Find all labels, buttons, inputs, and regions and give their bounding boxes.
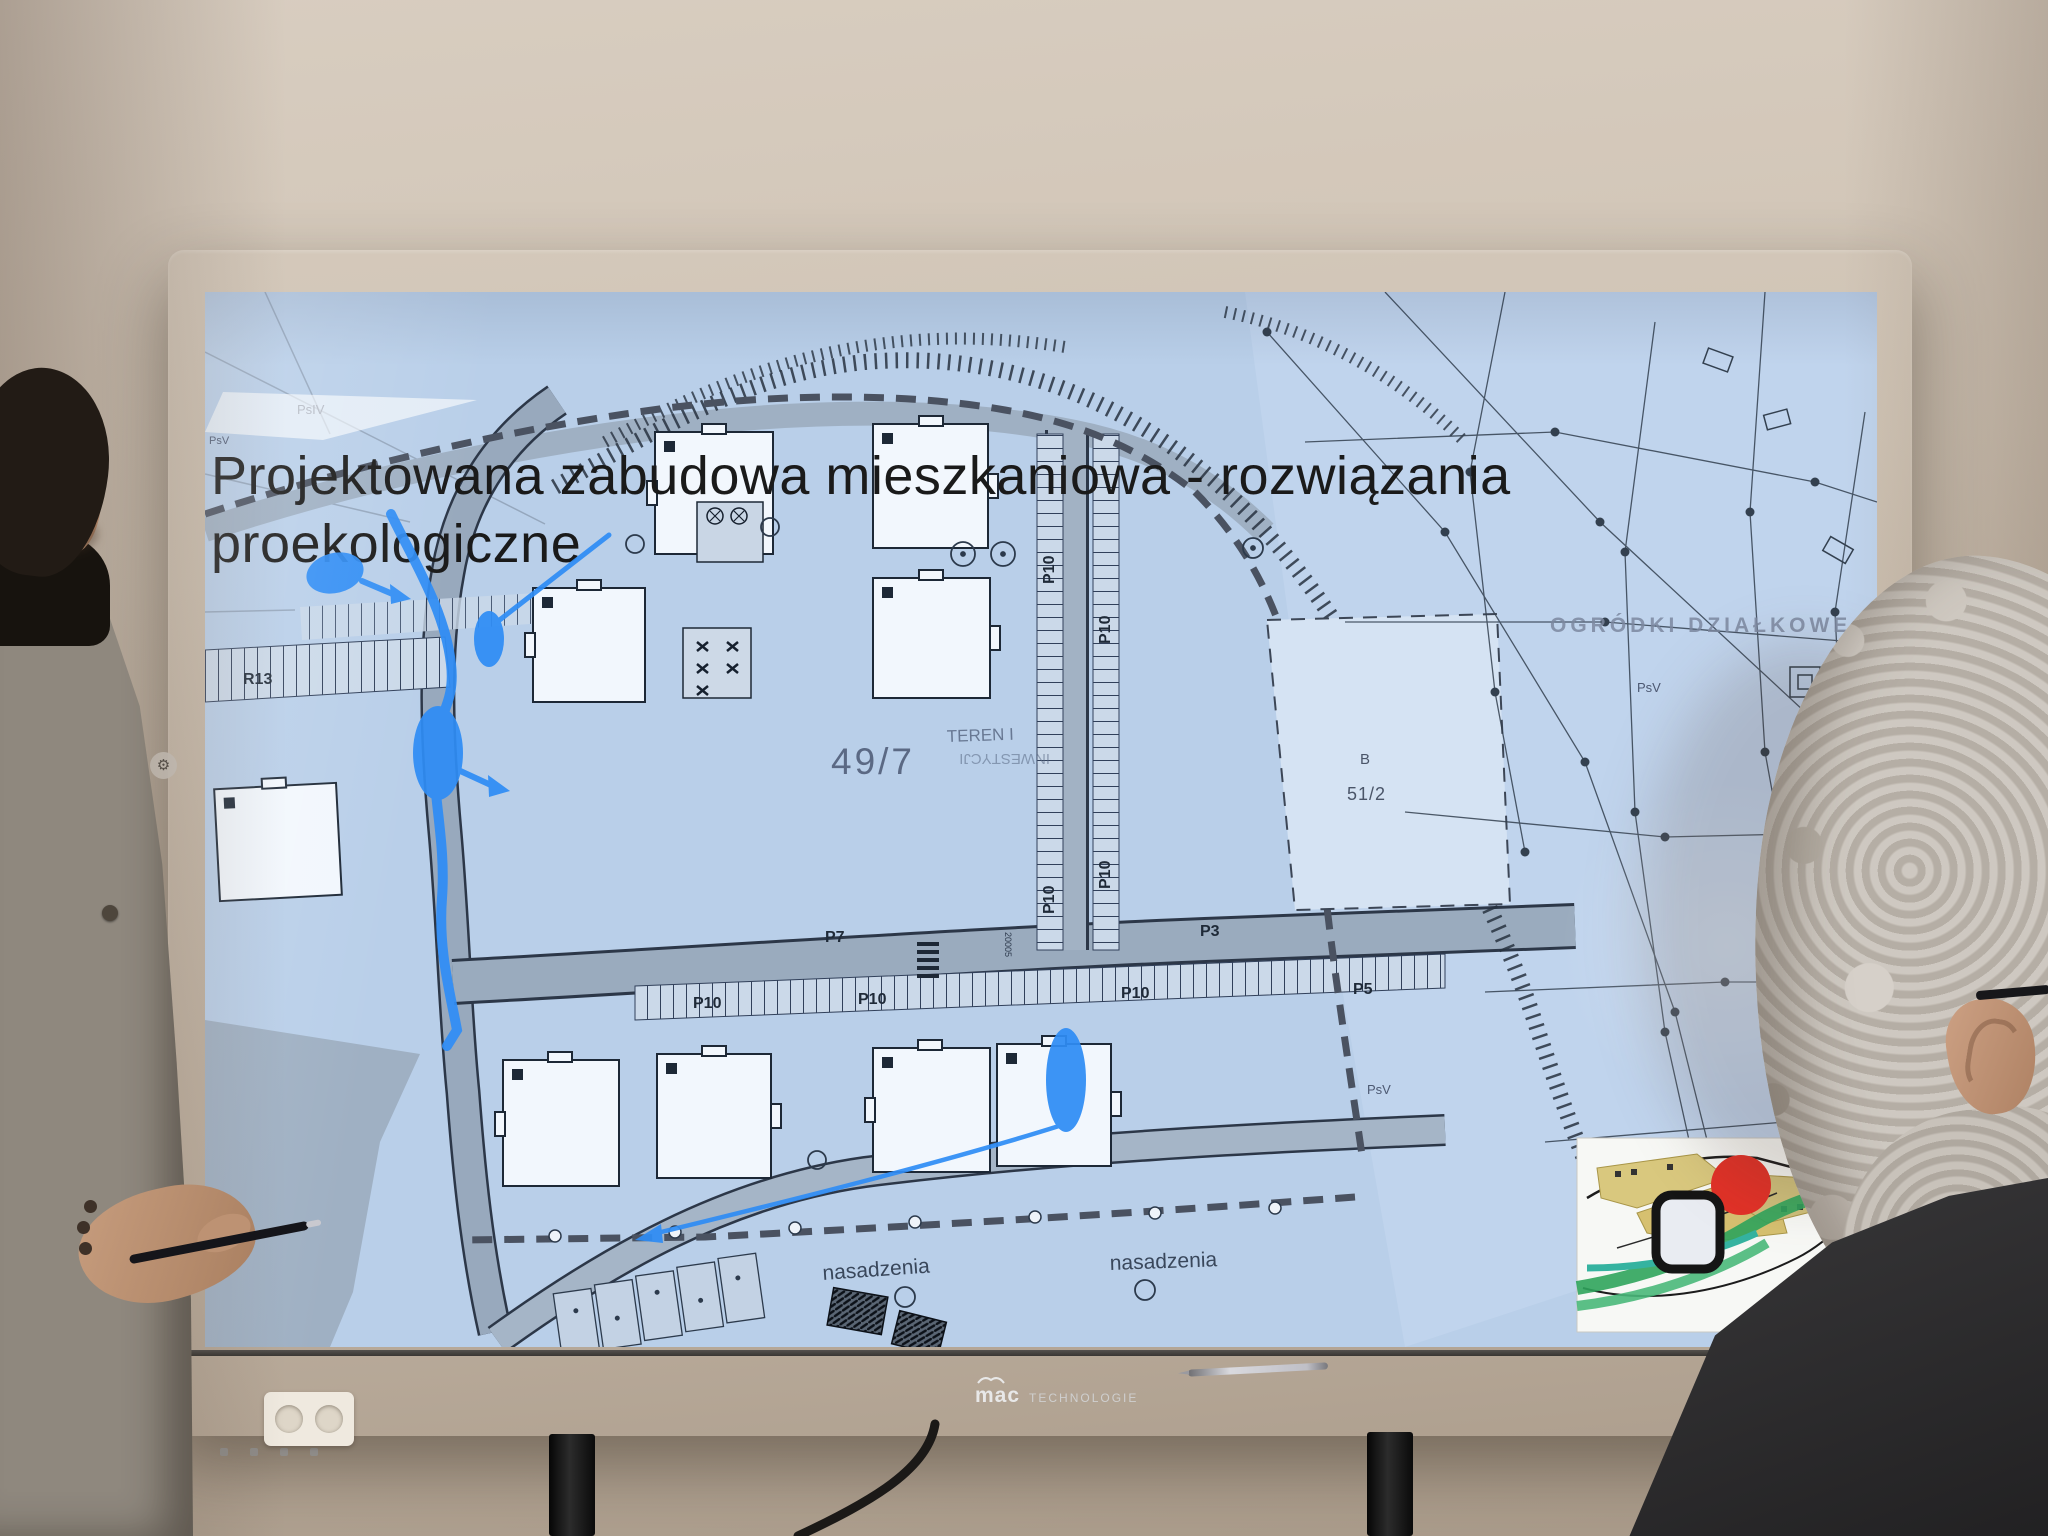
display-screen[interactable]: PsIV PsV OGRÓDKI DZIAŁKOWE PsV PsV B 51/… — [205, 292, 1877, 1347]
utility-square — [697, 502, 763, 562]
label-p3: P3 — [1200, 923, 1220, 940]
bracelet-bead — [84, 1200, 97, 1213]
label-p10-row3: P10 — [1121, 985, 1150, 1002]
glasses-temple — [1976, 985, 2048, 1000]
presenter-left-hair — [0, 360, 120, 583]
marker-ellipse-curve — [413, 706, 463, 800]
label-parcel-letter: B — [1360, 751, 1370, 768]
wall-outlet — [264, 1392, 354, 1446]
label-p10-v2: P10 — [1097, 615, 1114, 644]
tv-stand-leg-left — [549, 1434, 595, 1536]
label-teren-rotated: INWESTYCJI — [959, 750, 1050, 767]
label-allotments: OGRÓDKI DZIAŁKOWE — [1550, 613, 1851, 637]
bracelet-bead — [79, 1242, 92, 1255]
presenter-left-jacket — [0, 548, 193, 1536]
label-dimension: 20005 — [1003, 932, 1013, 957]
label-psv-east: PsV — [1637, 680, 1661, 695]
parcel-b — [1267, 614, 1510, 910]
label-teren: TEREN I — [946, 725, 1014, 746]
label-parcel-number: 51/2 — [1347, 784, 1386, 804]
marker-ellipse-south — [1046, 1028, 1086, 1132]
viewer-right-ear — [1939, 992, 2044, 1120]
tv-brand-suffix: TECHNOLOGIE — [1029, 1391, 1138, 1405]
label-plot-number: 49/7 — [831, 741, 915, 782]
presenter-left-turtleneck — [0, 534, 110, 646]
speaker-strip — [170, 1350, 1912, 1356]
playground — [683, 628, 751, 698]
label-p10-v4: P10 — [1097, 860, 1114, 889]
label-p10-row2: P10 — [858, 991, 887, 1008]
tv-brand-logo: mac TECHNOLOGIE — [975, 1374, 1138, 1406]
label-p7: P7 — [825, 929, 845, 946]
presenter-left-face — [25, 424, 106, 556]
tv-brand-name: mac — [975, 1385, 1020, 1406]
site-plan-map: PsIV PsV OGRÓDKI DZIAŁKOWE PsV PsV B 51/… — [205, 292, 1877, 1347]
tv-stand-leg-right — [1367, 1432, 1413, 1536]
jacket-button — [102, 905, 118, 921]
label-p5: P5 — [1353, 981, 1373, 998]
bezel-indicator-icons — [220, 1448, 318, 1456]
label-p10-v1: P10 — [1041, 555, 1058, 584]
label-p10-row1: P10 — [693, 995, 722, 1012]
gear-icon[interactable]: ⚙ — [150, 752, 177, 779]
inset-location-ring — [1656, 1195, 1720, 1269]
slide-title-line1: Projektowana zabudowa mieszkaniowa - roz… — [211, 446, 1511, 506]
photo-scene: PsIV PsV OGRÓDKI DZIAŁKOWE PsV PsV B 51/… — [0, 0, 2048, 1536]
label-nasadzenia-east: nasadzenia — [1109, 1248, 1217, 1275]
interactive-display: PsIV PsV OGRÓDKI DZIAŁKOWE PsV PsV B 51/… — [168, 250, 1912, 1436]
inset-map[interactable] — [1577, 1138, 1873, 1332]
bracelet-bead — [77, 1221, 90, 1234]
label-p10-v3: P10 — [1041, 885, 1058, 914]
label-psv-southeast: PsV — [1367, 1082, 1391, 1097]
label-r13: R13 — [243, 671, 272, 688]
